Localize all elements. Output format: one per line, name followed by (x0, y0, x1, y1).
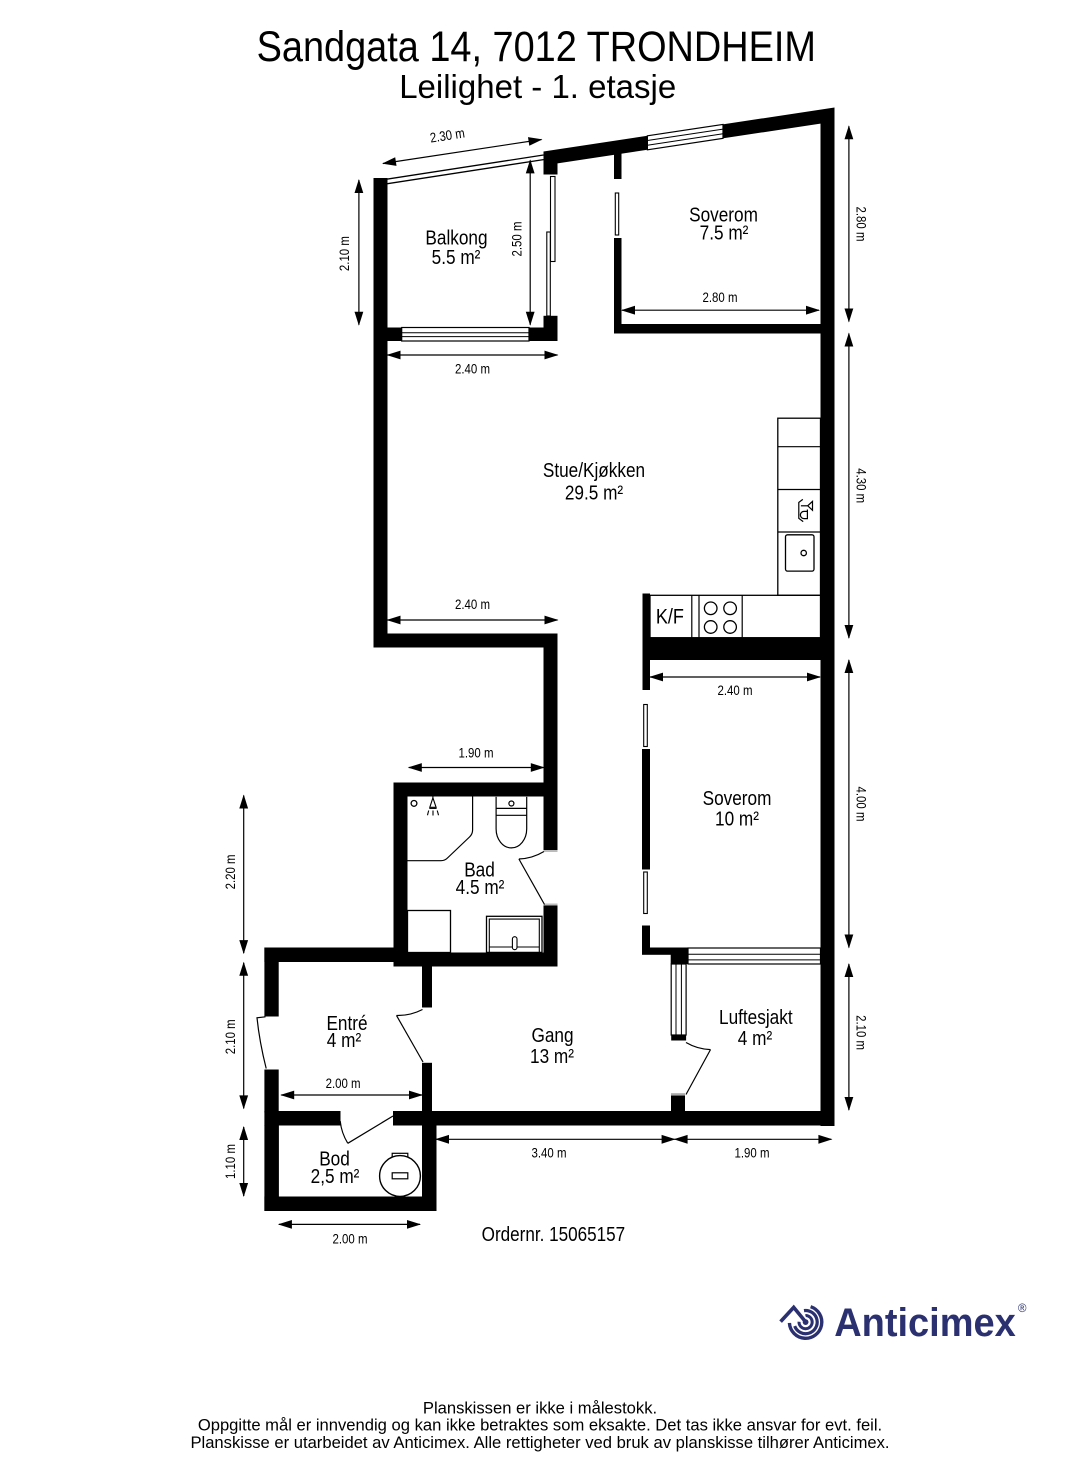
svg-text:1.10 m: 1.10 m (223, 1144, 238, 1179)
svg-text:5.5 m²: 5.5 m² (432, 246, 481, 269)
svg-text:2.80 m: 2.80 m (853, 207, 868, 242)
svg-text:4 m²: 4 m² (327, 1029, 361, 1052)
svg-text:2.10 m: 2.10 m (223, 1019, 238, 1054)
svg-text:3.40 m: 3.40 m (532, 1146, 567, 1161)
svg-text:2.40 m: 2.40 m (455, 597, 490, 612)
svg-text:Oppgitte mål er innvendig og k: Oppgitte mål er innvendig og kan ikke be… (198, 1416, 882, 1435)
svg-text:29.5 m²: 29.5 m² (565, 481, 623, 504)
svg-text:1.90 m: 1.90 m (459, 746, 494, 761)
svg-text:13 m²: 13 m² (530, 1045, 574, 1068)
svg-text:K/F: K/F (656, 605, 684, 629)
svg-text:1.90 m: 1.90 m (735, 1146, 770, 1161)
svg-text:2.40 m: 2.40 m (718, 683, 753, 698)
svg-text:Stue/Kjøkken: Stue/Kjøkken (543, 459, 645, 482)
svg-text:2,5 m²: 2,5 m² (311, 1165, 360, 1188)
svg-text:2.10 m: 2.10 m (337, 236, 352, 271)
svg-text:2.20 m: 2.20 m (223, 854, 238, 889)
svg-text:Anticimex: Anticimex (834, 1301, 1016, 1345)
svg-text:2.00 m: 2.00 m (333, 1232, 368, 1247)
svg-text:Gang: Gang (531, 1024, 573, 1047)
svg-text:7.5 m²: 7.5 m² (700, 221, 749, 244)
svg-text:Luftesjakt: Luftesjakt (719, 1006, 793, 1029)
svg-text:2.00 m: 2.00 m (326, 1076, 361, 1091)
svg-text:®: ® (1018, 1303, 1027, 1315)
svg-text:Soverom: Soverom (703, 787, 772, 810)
svg-text:10 m²: 10 m² (715, 807, 759, 830)
svg-text:Leilighet - 1. etasje: Leilighet - 1. etasje (399, 68, 676, 105)
svg-text:Planskissen er ikke i målestok: Planskissen er ikke i målestokk. (423, 1398, 657, 1417)
svg-text:2.10 m: 2.10 m (853, 1015, 868, 1050)
svg-text:4.30 m: 4.30 m (853, 468, 868, 503)
svg-text:Planskisse er utarbeidet av An: Planskisse er utarbeidet av Anticimex. A… (190, 1433, 889, 1452)
svg-text:2.80 m: 2.80 m (703, 290, 738, 305)
svg-text:4.00 m: 4.00 m (853, 787, 868, 822)
svg-text:4 m²: 4 m² (738, 1027, 772, 1050)
svg-text:Sandgata 14, 7012 TRONDHEIM: Sandgata 14, 7012 TRONDHEIM (257, 22, 816, 71)
svg-text:Ordernr. 15065157: Ordernr. 15065157 (482, 1224, 625, 1247)
svg-text:2.50 m: 2.50 m (510, 222, 525, 257)
svg-text:4.5 m²: 4.5 m² (456, 876, 505, 899)
svg-text:2.40 m: 2.40 m (455, 362, 490, 377)
